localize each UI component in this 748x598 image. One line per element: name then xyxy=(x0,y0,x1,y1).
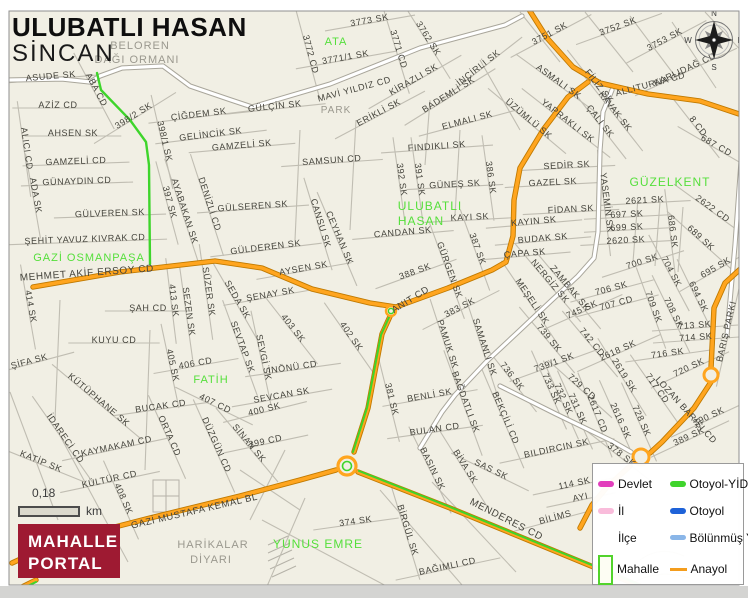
legend-item-il: İl xyxy=(598,497,670,524)
legend-item-otoyol: Otoyol xyxy=(670,497,742,524)
place-label: HARİKALAR xyxy=(177,538,248,551)
legend-label: Otoyol-YİD xyxy=(690,477,748,491)
legend-label: Devlet xyxy=(618,477,652,491)
scale-unit: km xyxy=(86,504,102,518)
street-label: AZİZ CD xyxy=(38,100,77,110)
legend-label: Bölünmüş Y xyxy=(690,531,748,545)
legend-label: Anayol xyxy=(691,562,728,576)
legend-item-bolunmus-yol: Bölünmüş Y xyxy=(670,524,742,551)
ilce-line-swatch xyxy=(598,535,614,541)
district-label: FATİH xyxy=(193,373,228,386)
otoyol-yid-line-swatch xyxy=(670,481,686,487)
district-label: ATA xyxy=(325,36,348,48)
place-label: PARK xyxy=(321,105,352,116)
place-label: DİYARI xyxy=(190,553,232,566)
street-label: AHSEN SK xyxy=(48,128,98,138)
street-label: 699 SK xyxy=(610,221,644,233)
legend-item-devlet: Devlet xyxy=(598,470,670,497)
scale-distance: 0,18 xyxy=(32,486,55,500)
place-label: DAĞI ORMANI xyxy=(95,53,180,66)
street-label: 2620 SK xyxy=(606,234,645,246)
legend-item-anayol: Anayol xyxy=(670,551,742,587)
street-label: KUYU CD xyxy=(92,335,137,345)
otoyol-line-swatch xyxy=(670,508,686,514)
district-label: YUNUS EMRE xyxy=(273,537,363,551)
legend-label: Mahalle xyxy=(617,562,659,576)
compass-west-label: W xyxy=(684,36,692,45)
street-label: GAMZELİ CD xyxy=(45,155,106,167)
bolunmus-yol-line-swatch xyxy=(670,535,686,540)
mahalle-portal-map-page: BELORENDAĞI ORMANI3773 SK3772 CDATA3771/… xyxy=(0,0,748,598)
bottom-margin xyxy=(0,586,748,598)
legend-label: Otoyol xyxy=(690,504,725,518)
mahalle-portal-logo[interactable]: MAHALLE PORTAL xyxy=(18,524,120,578)
legend-label: İlçe xyxy=(618,531,637,545)
logo-line2: PORTAL xyxy=(28,553,120,575)
mahalle-boundary-swatch xyxy=(598,555,613,585)
street-label: ŞAH CD xyxy=(129,303,167,313)
legend-item-ilce: İlçe xyxy=(598,524,670,551)
place-label: BELOREN xyxy=(110,40,170,52)
compass-south-label: S xyxy=(711,63,716,72)
street-label: 2621 SK xyxy=(625,194,664,206)
anayol-line-swatch xyxy=(670,568,687,571)
street-label: 697 SK xyxy=(610,208,644,220)
district-label: GAZİ OSMANPAŞA xyxy=(33,251,145,264)
devlet-line-swatch xyxy=(598,481,614,487)
legend-item-mahalle: Mahalle xyxy=(598,551,670,587)
logo-line1: MAHALLE xyxy=(28,531,120,553)
district-label: GÜZELKENT xyxy=(629,175,710,189)
legend-label: İl xyxy=(618,504,624,518)
map-legend: Devlet Otoyol-YİD İl Otoyol İlçe Bölünmü… xyxy=(592,463,744,585)
il-line-swatch xyxy=(598,508,614,514)
district-label: ULUBATLI xyxy=(398,199,462,213)
legend-item-otoyol-yid: Otoyol-YİD xyxy=(670,470,742,497)
street-label: KAYI SK xyxy=(450,211,489,223)
scale-bar-rect xyxy=(18,506,80,517)
